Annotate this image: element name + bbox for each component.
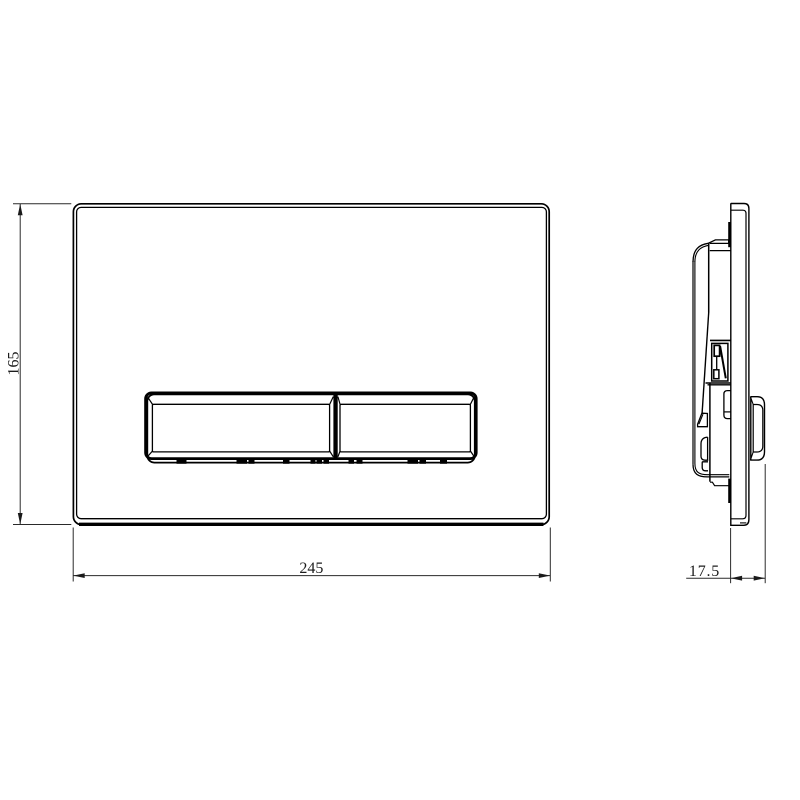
svg-text:17.5: 17.5 [689,563,720,580]
svg-text:165: 165 [5,352,22,376]
svg-text:245: 245 [299,560,323,577]
